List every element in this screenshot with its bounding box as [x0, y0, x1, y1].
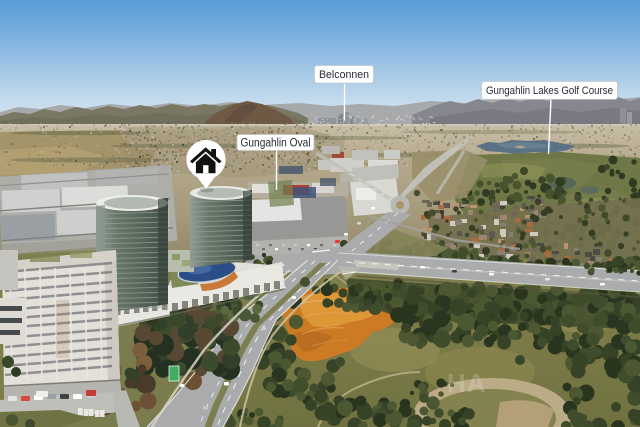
- svg-text:HA: HA: [447, 368, 487, 398]
- svg-text:Belconnen: Belconnen: [319, 69, 369, 81]
- svg-text:Gungahlin Lakes Golf Course: Gungahlin Lakes Golf Course: [486, 85, 613, 97]
- svg-text:Gungahlin Oval: Gungahlin Oval: [241, 138, 311, 150]
